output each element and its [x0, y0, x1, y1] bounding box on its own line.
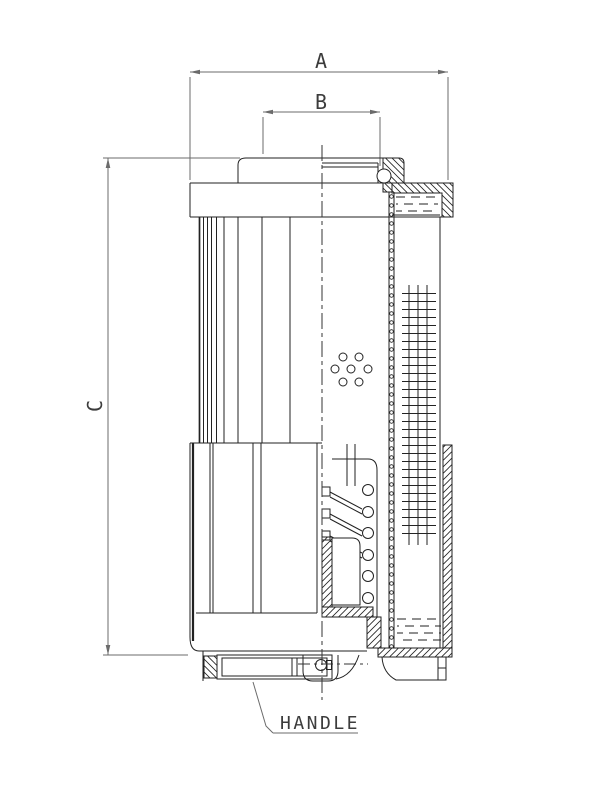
dimension-a-label: A: [315, 49, 327, 73]
paper-background: [0, 0, 612, 792]
filter-mesh: [402, 285, 436, 545]
dimension-b-label: B: [315, 90, 327, 114]
bottom-plate: [378, 648, 452, 657]
handle-label: HANDLE: [280, 713, 360, 734]
drawing-page: A B C: [0, 0, 612, 792]
filter-element-drawing: A B C: [0, 0, 612, 792]
housing-outer-wall: [443, 445, 452, 648]
o-ring-seal: [377, 169, 391, 183]
pivot-pin: [316, 660, 327, 671]
dimension-c-label: C: [83, 400, 107, 412]
core-tube: [389, 192, 394, 648]
handle-end-section: [204, 656, 217, 678]
